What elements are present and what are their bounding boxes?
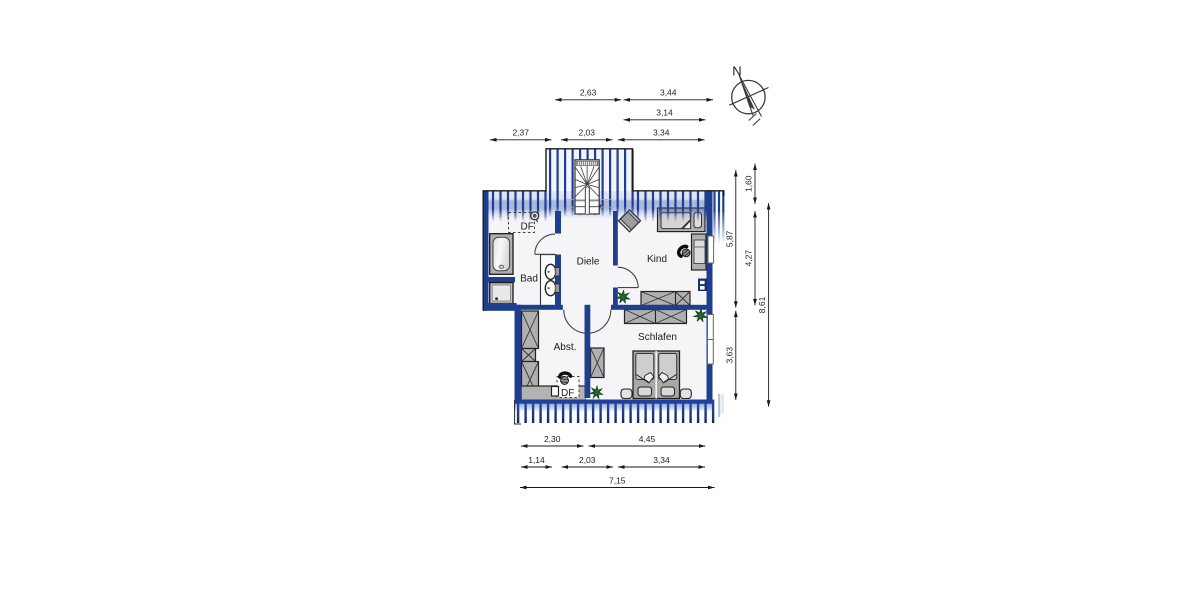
svg-text:4,45: 4,45 xyxy=(639,434,656,444)
svg-text:8,61: 8,61 xyxy=(757,296,767,313)
svg-text:3,63: 3,63 xyxy=(724,347,734,364)
svg-text:N: N xyxy=(732,64,741,79)
svg-text:DF: DF xyxy=(561,388,574,399)
svg-text:DF: DF xyxy=(521,222,534,233)
svg-text:2,03: 2,03 xyxy=(578,128,595,138)
svg-text:2,63: 2,63 xyxy=(580,88,597,98)
svg-text:Kind: Kind xyxy=(647,254,667,265)
svg-text:3,34: 3,34 xyxy=(653,455,670,465)
svg-text:Diele: Diele xyxy=(577,257,600,268)
svg-text:Abst.: Abst. xyxy=(554,342,577,353)
svg-text:Schlafen: Schlafen xyxy=(638,332,677,343)
svg-text:4,27: 4,27 xyxy=(744,250,754,267)
svg-text:2,37: 2,37 xyxy=(512,128,529,138)
svg-text:3,34: 3,34 xyxy=(653,128,670,138)
svg-text:5,87: 5,87 xyxy=(724,230,734,247)
svg-text:2,30: 2,30 xyxy=(544,434,561,444)
svg-text:2,03: 2,03 xyxy=(579,455,596,465)
svg-text:Bad: Bad xyxy=(520,274,538,285)
svg-text:1,60: 1,60 xyxy=(744,175,754,192)
svg-text:1,14: 1,14 xyxy=(528,455,545,465)
svg-text:3,14: 3,14 xyxy=(656,108,673,118)
svg-text:7,15: 7,15 xyxy=(609,475,626,485)
svg-text:3,44: 3,44 xyxy=(660,88,677,98)
